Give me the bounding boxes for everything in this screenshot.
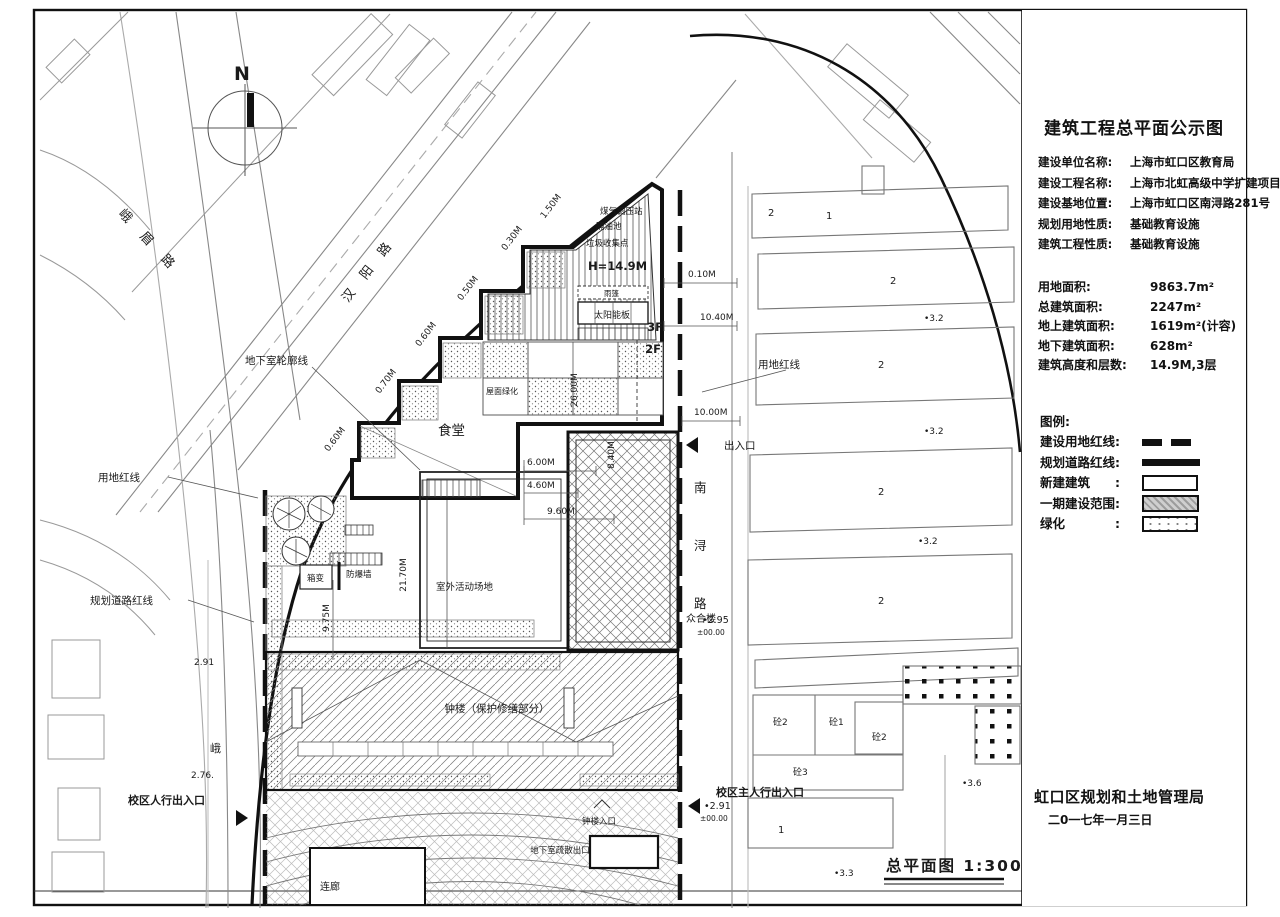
info-row: 规划用地性质:基础教育设施 <box>1038 214 1238 235</box>
label-height: H=14.9M <box>588 259 647 273</box>
info-value: 基础教育设施 <box>1130 214 1200 235</box>
agency-name: 虹口区规划和土地管理局 <box>1034 786 1205 807</box>
dim-9-60: 9.60M <box>547 507 575 517</box>
num-b2: 2 <box>890 276 896 287</box>
legend-row: 绿化 : <box>1040 514 1236 535</box>
stat-row: 用地面积:9863.7m² <box>1038 278 1238 298</box>
info-panel: 建筑工程总平面公示图 建设单位名称:上海市虹口区教育局 建设工程名称:上海市北虹… <box>1022 10 1246 906</box>
info-value: 基础教育设施 <box>1130 234 1200 255</box>
legend-swatch-greenery <box>1142 516 1198 532</box>
elev-32b: •3.2 <box>924 427 944 437</box>
stat-row: 地下建筑面积:628m² <box>1038 337 1238 357</box>
elev-295-pm: ±00.00 <box>697 628 725 637</box>
caption-block: 总平面图 1:300 <box>884 856 1023 884</box>
stat-label: 用地面积: <box>1038 278 1150 298</box>
elev-276-left: 2.76. <box>191 771 214 781</box>
legend-label: 一期建设范围: <box>1040 494 1136 515</box>
elev-32c: •3.2 <box>918 537 938 547</box>
label-basement-outline: 地下室轮廓线 <box>245 354 308 367</box>
info-label: 建设工程名称: <box>1038 173 1130 194</box>
elev-33: •3.3 <box>834 869 854 879</box>
dim-0-10: 0.10M <box>688 270 716 280</box>
street-nanxun-1: 南 <box>694 480 707 495</box>
info-row: 建筑工程性质:基础教育设施 <box>1038 234 1238 255</box>
dim-21-70: 21.70M <box>399 558 409 592</box>
dim-9-75: 9.75M <box>322 604 332 632</box>
stat-value: 2247m² <box>1150 298 1201 318</box>
num-a1: 1 <box>826 211 832 222</box>
stat-value: 9863.7m² <box>1150 278 1214 298</box>
stat-label: 地上建筑面积: <box>1038 317 1150 337</box>
label-entrance: 出入口 <box>724 439 756 452</box>
dim-0-60a: 0.60M <box>414 321 439 349</box>
legend-swatch-dashed-redline <box>1142 439 1200 446</box>
area-stats-list: 用地面积:9863.7m² 总建筑面积:2247m² 地上建筑面积:1619m²… <box>1038 278 1238 376</box>
issue-date: 二0一七年一月三日 <box>1048 811 1152 828</box>
dim-0-70: 0.70M <box>374 368 399 396</box>
label-playground: 室外活动场地 <box>436 581 494 593</box>
legend-row: 一期建设范围: <box>1040 494 1236 515</box>
stat-row: 建筑高度和层数:14.9M,3层 <box>1038 356 1238 376</box>
label-3f: 3F <box>647 320 663 334</box>
dim-4-60: 4.60M <box>527 481 555 491</box>
ped-entrance-arrow <box>236 810 248 826</box>
north-letter: N <box>234 63 250 85</box>
dim-10-00: 10.00M <box>694 408 728 418</box>
num-a2: 2 <box>768 208 774 219</box>
label-canopy: 雨篷 <box>604 288 619 298</box>
legend-row: 规划道路红线: <box>1040 453 1236 474</box>
label-bell-tower: 钟楼（保护修缮部分） <box>445 702 550 715</box>
label-garbage-point: 垃圾收集点 <box>586 238 629 249</box>
label-solar: 太阳能板 <box>594 309 630 321</box>
street-emei: 峨眉路 <box>115 206 190 285</box>
dim-8-40: 8.40M <box>607 441 617 469</box>
legend-row: 新建建筑 : <box>1040 473 1236 494</box>
legend-row: 建设用地红线: <box>1040 432 1236 453</box>
label-roof-green: 屋面绿化 <box>486 386 518 396</box>
panel-title: 建筑工程总平面公示图 <box>1044 114 1224 139</box>
elev-295-right: •2.95 <box>702 615 729 626</box>
street-nanxun-3: 路 <box>694 596 707 611</box>
dim-1-50: 1.50M <box>539 193 564 221</box>
bell-tower-block <box>266 652 678 790</box>
zhonghelou-block <box>568 432 678 650</box>
label-bell-entrance: 钟楼入口 <box>582 816 616 827</box>
num-d2: 2 <box>878 487 884 498</box>
stat-label: 地下建筑面积: <box>1038 337 1150 357</box>
stat-value: 628m² <box>1150 337 1193 357</box>
stat-row: 地上建筑面积:1619m²(计容) <box>1038 317 1238 337</box>
legend-label: 规划道路红线: <box>1040 453 1136 474</box>
info-value: 上海市虹口区南浔路281号 <box>1130 193 1270 214</box>
info-row: 建设基地位置:上海市虹口区南浔路281号 <box>1038 193 1238 214</box>
stat-row: 总建筑面积:2247m² <box>1038 298 1238 318</box>
caption-text: 总平面图 1:300 <box>886 856 1023 875</box>
num-h4: 砼3 <box>793 766 808 778</box>
info-label: 建设基地位置: <box>1038 193 1130 214</box>
dim-6-00: 6.00M <box>527 458 555 468</box>
legend-label: 建设用地红线: <box>1040 432 1136 453</box>
dim-10-40: 10.40M <box>700 313 734 323</box>
legend-swatch-new-building <box>1142 475 1198 491</box>
num-f1: 1 <box>778 825 784 836</box>
label-box-transformer: 箱变 <box>307 573 325 584</box>
num-c2: 2 <box>878 360 884 371</box>
elev-291-left: 2.91 <box>194 658 214 668</box>
stat-label: 建筑高度和层数: <box>1038 356 1150 376</box>
num-e2: 2 <box>878 596 884 607</box>
label-ped-entrance-left: 校区人行出入口 <box>128 793 205 807</box>
legend-label: 绿化 : <box>1040 514 1136 535</box>
label-grease-trap: 隔油池 <box>596 221 622 232</box>
elev-291-right: •2.91 <box>704 801 731 812</box>
stat-label: 总建筑面积: <box>1038 298 1150 318</box>
street-emei-tail: 峨 <box>210 742 221 755</box>
label-canteen: 食堂 <box>438 422 465 439</box>
stat-value: 14.9M,3层 <box>1150 356 1216 376</box>
legend: 图例: 建设用地红线: 规划道路红线: 新建建筑 : 一期建设范围: 绿化 : <box>1040 412 1236 535</box>
elev-36: •3.6 <box>962 779 982 789</box>
dim-26-00: 26.00M <box>570 373 580 407</box>
num-h2: 砼1 <box>829 716 844 728</box>
info-label: 建筑工程性质: <box>1038 234 1130 255</box>
dim-0-50: 0.50M <box>456 275 481 303</box>
elev-32a: •3.2 <box>924 314 944 324</box>
legend-swatch-road-redline <box>1142 459 1200 466</box>
legend-label: 新建建筑 : <box>1040 473 1136 494</box>
label-ped-entrance-main: 校区主人行出入口 <box>716 785 804 799</box>
info-label: 建设单位名称: <box>1038 152 1130 173</box>
label-blast-wall: 防爆墙 <box>346 569 372 580</box>
building-numbers: 2 1 2 2 2 2 砼2 砼1 砼2 砼3 1 <box>768 208 896 836</box>
label-2f: 2F <box>645 342 661 356</box>
label-basement-exit: 地下室疏散出口 <box>530 845 590 856</box>
street-hanyang: 汉阳路 <box>339 227 405 305</box>
label-gas-regulator: 煤气调压站 <box>600 206 643 217</box>
sweeping-road-curve <box>690 35 1020 452</box>
project-info-list: 建设单位名称:上海市虹口区教育局 建设工程名称:上海市北虹高级中学扩建项目 建设… <box>1038 152 1238 255</box>
north-compass: N <box>193 63 297 176</box>
dim-0-60b: 0.60M <box>323 426 348 454</box>
street-nanxun-2: 浔 <box>694 538 707 553</box>
planting-band <box>272 620 534 637</box>
legend-title: 图例: <box>1040 412 1236 432</box>
main-entrance-arrow <box>688 798 700 814</box>
info-row: 建设单位名称:上海市虹口区教育局 <box>1038 152 1238 173</box>
entrance-arrow-right <box>686 437 698 453</box>
info-row: 建设工程名称:上海市北虹高级中学扩建项目 <box>1038 173 1238 194</box>
num-h1: 砼2 <box>773 716 788 728</box>
info-value: 上海市虹口区教育局 <box>1130 152 1234 173</box>
label-road-redline: 规划道路红线 <box>90 594 153 607</box>
info-value: 上海市北虹高级中学扩建项目 <box>1130 173 1280 194</box>
info-label: 规划用地性质: <box>1038 214 1130 235</box>
label-redline-right: 用地红线 <box>758 358 800 371</box>
stat-value: 1619m²(计容) <box>1150 317 1236 337</box>
label-corridor: 连廊 <box>320 880 340 893</box>
legend-swatch-phase1-scope <box>1142 495 1199 512</box>
elev-291-pm: ±00.00 <box>700 814 728 823</box>
site-plan-page: N <box>0 0 1280 917</box>
num-h3: 砼2 <box>872 731 887 743</box>
label-redline-left: 用地红线 <box>98 471 140 484</box>
